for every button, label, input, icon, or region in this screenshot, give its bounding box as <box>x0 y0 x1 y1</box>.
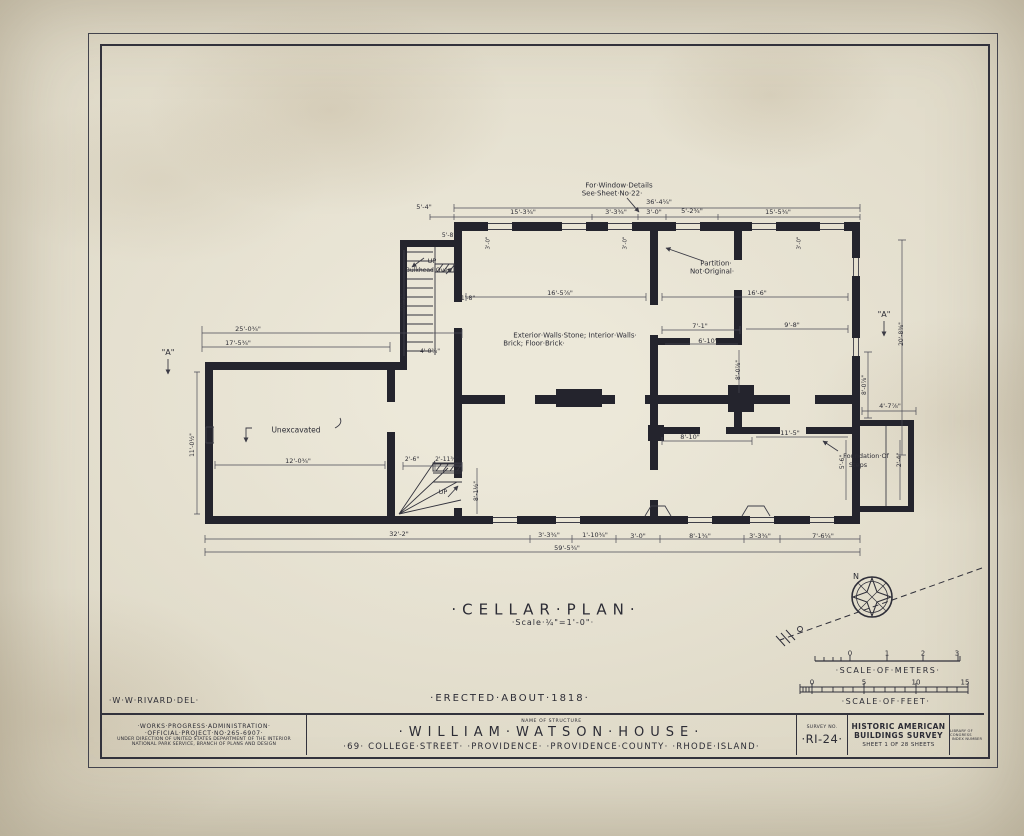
scale-meters-label: ·SCALE·OF·METERS· <box>836 667 941 675</box>
sheet-count: SHEET 1 OF 28 SHEETS <box>862 742 934 748</box>
dim: 8'-10" <box>680 434 700 441</box>
section-marker-right: "A" <box>878 311 891 319</box>
habs-line2: BUILDINGS SURVEY <box>854 731 943 740</box>
dim: 3'-0" <box>646 209 661 216</box>
dim: 32'-2" <box>389 531 409 538</box>
feet-tick-15: 15 <box>961 680 970 687</box>
erected-note: ·ERECTED·ABOUT·1818· <box>430 694 590 704</box>
dim: 8'-0⅞" <box>736 360 742 380</box>
dim: 8'-1¾" <box>689 533 711 540</box>
scale-feet-label: ·SCALE·OF·FEET· <box>842 698 931 706</box>
title-block: ·WORKS·PROGRESS·ADMINISTRATION· ·OFFICIA… <box>102 713 984 755</box>
window-note-line2: See·Sheet·No·22· <box>582 191 643 198</box>
survey-number-block: SURVEY NO. ·RI-24· <box>797 715 848 755</box>
loc-line2: INDEX NUMBER <box>952 737 982 741</box>
meters-tick-1: 1 <box>885 651 889 658</box>
foundation-note-line2: Steps <box>849 462 867 469</box>
unexcavated-label: Unexcavated <box>271 426 320 434</box>
feet-tick-0: 0 <box>810 680 814 687</box>
dim: 3'-3¾" <box>538 532 560 539</box>
dim: 2'-6" <box>405 457 419 463</box>
window-note-line1: For·Window·Details <box>585 183 652 190</box>
wpa-block: ·WORKS·PROGRESS·ADMINISTRATION· ·OFFICIA… <box>102 715 307 755</box>
dim: 3'-0" <box>486 236 492 249</box>
meters-tick-2: 2 <box>921 651 925 658</box>
dim: 6'-10" <box>698 338 718 345</box>
materials-note-line2: Brick; Floor·Brick· <box>503 341 565 348</box>
dim: 20'-8⅜" <box>899 322 905 346</box>
drawing-title: ·CELLAR·PLAN· <box>451 603 640 618</box>
feet-tick-5: 5 <box>862 680 866 687</box>
habs-sheet: { "colors": { "ink": "#2c2c35", "wall_in… <box>0 0 1024 836</box>
dim: 2'-11¾" <box>435 457 459 463</box>
dim: 25'-0¾" <box>235 326 261 333</box>
delineator: ·W·W·RIVARD·DEL· <box>109 697 199 705</box>
loc-block: LIBRARY OF CONGRESS INDEX NUMBER <box>950 715 984 755</box>
dim: 5'-2¾" <box>681 208 703 215</box>
up-label-stair: UP <box>439 489 448 496</box>
wpa-line4: NATIONAL PARK SERVICE, BRANCH OF PLANS A… <box>132 742 276 747</box>
dim: 36'-4¼" <box>646 199 672 206</box>
dim: 5'-4" <box>416 204 431 211</box>
dim: 8'-1½" <box>474 481 480 501</box>
dim: 4'-7⅞" <box>879 403 901 410</box>
feet-tick-10: 10 <box>912 680 921 687</box>
dim: 8'-0⅞" <box>862 375 868 395</box>
habs-block: HISTORIC AMERICAN BUILDINGS SURVEY SHEET… <box>848 715 950 755</box>
dim: 16'-6" <box>747 290 767 297</box>
up-label-bulkhead: UP <box>428 258 437 265</box>
partition-note-line1: Partition· <box>700 261 731 268</box>
dim: 1'-8" <box>461 296 475 302</box>
dim: 1'-10¾" <box>582 532 608 539</box>
dim: 12'-0¾" <box>285 458 311 465</box>
habs-line1: HISTORIC AMERICAN <box>852 722 946 731</box>
annotation-layer: ·CELLAR·PLAN··Scale·¼"=1'-0"··ERECTED·AB… <box>0 0 1024 836</box>
wpa-line1: ·WORKS·PROGRESS·ADMINISTRATION· <box>137 723 270 730</box>
dim: 7'-6¼" <box>812 533 834 540</box>
dim: 11'-5" <box>780 430 800 437</box>
bulkhead-note: Bulkhead·Over <box>406 268 450 274</box>
compass-north-label: N <box>853 573 859 581</box>
dim: 15'-5¾" <box>765 209 791 216</box>
dim: 15'-3¾" <box>510 209 536 216</box>
section-marker-left: "A" <box>162 349 175 357</box>
drawing-scale: ·Scale·¼"=1'-0"· <box>512 619 594 627</box>
survey-no-label: SURVEY NO. <box>807 725 838 730</box>
dim: 3'-0" <box>623 236 629 249</box>
structure-address: ·69· COLLEGE·STREET· ·PROVIDENCE· ·PROVI… <box>343 742 760 752</box>
partition-note-line2: Not·Original· <box>690 269 734 276</box>
dim: 3'-0" <box>630 533 645 540</box>
materials-note-line1: Exterior·Walls·Stone; Interior·Walls· <box>513 333 636 340</box>
dim: 11'-0½" <box>190 433 196 457</box>
dim: 2'-4" <box>897 453 903 467</box>
survey-no-value: ·RI-24· <box>802 732 843 746</box>
meters-tick-3: 3 <box>955 651 959 658</box>
dim: 5'-6" <box>840 455 846 469</box>
dim: 3'-3¾" <box>749 533 771 540</box>
dim: 3'-0" <box>797 236 803 249</box>
dim: 7'-1" <box>692 323 707 330</box>
dim: 10'-2" <box>401 294 407 312</box>
structure-name: ·WILLIAM·WATSON·HOUSE· <box>399 725 705 740</box>
dim: 4'-0¾" <box>420 349 440 355</box>
name-of-structure-label: NAME OF STRUCTURE <box>521 719 582 724</box>
meters-tick-0: 0 <box>848 651 852 658</box>
dim: 16'-5⅞" <box>547 290 573 297</box>
structure-name-block: NAME OF STRUCTURE ·WILLIAM·WATSON·HOUSE·… <box>307 715 797 755</box>
dim: 9'-8" <box>784 322 799 329</box>
dim: 3'-3¾" <box>605 209 627 216</box>
foundation-note-line1: Foundation·Of <box>843 453 889 460</box>
dim: 17'-5¾" <box>225 340 251 347</box>
dim: 59'-5¾" <box>554 545 580 552</box>
dim: 5'-8" <box>442 233 456 239</box>
wpa-line2: ·OFFICIAL·PROJECT·NO·265-6907· <box>145 730 263 737</box>
loc-line1: LIBRARY OF CONGRESS <box>950 729 984 737</box>
